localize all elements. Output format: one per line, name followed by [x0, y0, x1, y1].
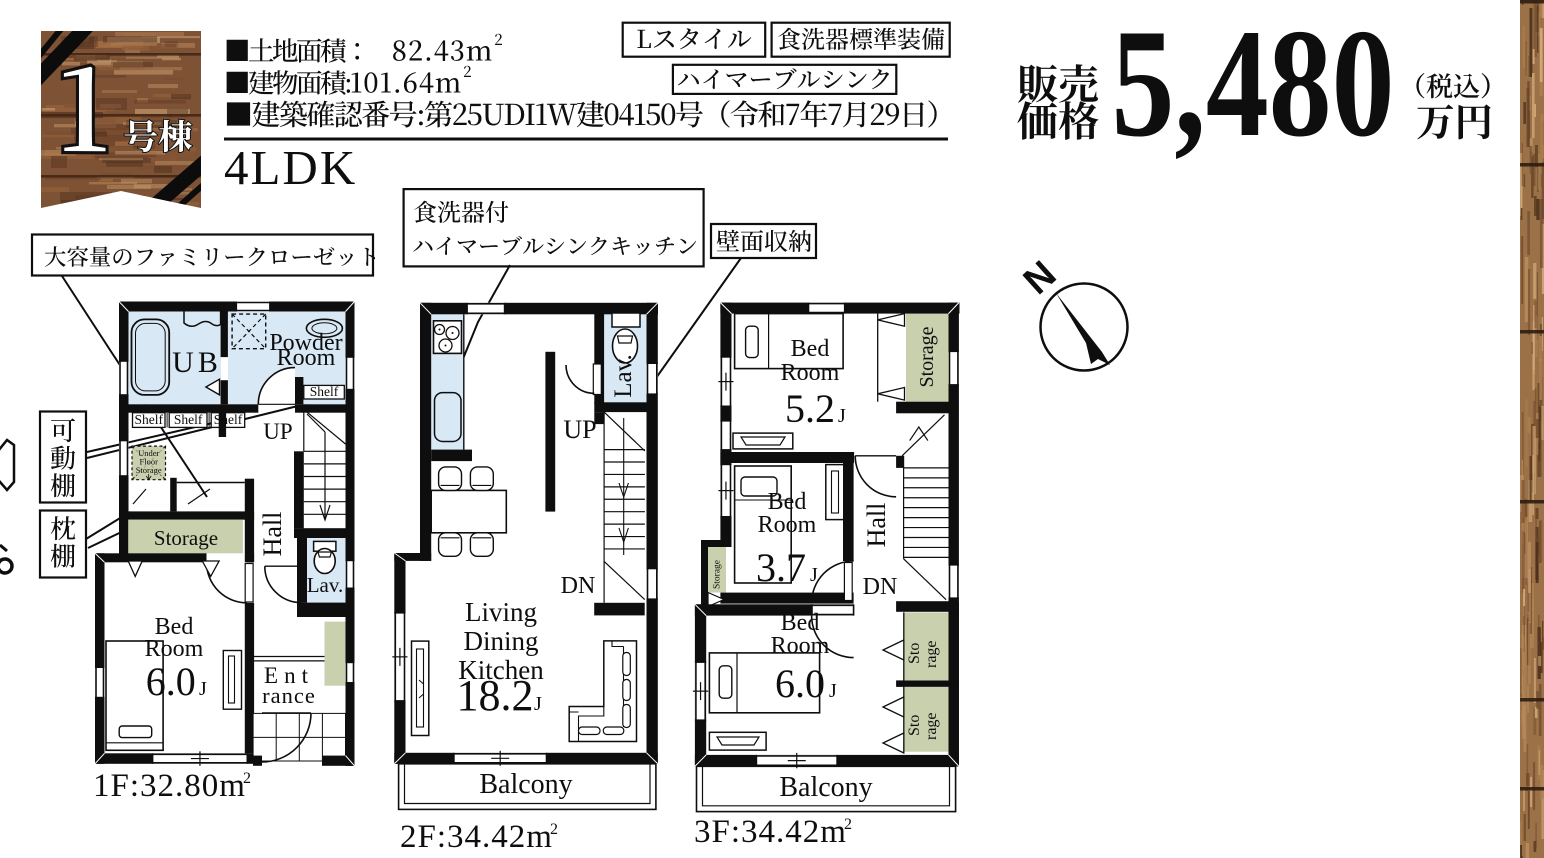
svg-text:UP: UP — [263, 419, 292, 444]
svg-text:Storage: Storage — [916, 326, 938, 387]
svg-text:UP: UP — [563, 415, 596, 444]
svg-text:rage: rage — [923, 712, 940, 740]
svg-text:rance: rance — [262, 683, 316, 708]
svg-text:Storage: Storage — [136, 465, 162, 475]
svg-text:Balcony: Balcony — [779, 772, 872, 803]
svg-text:Dining: Dining — [463, 626, 538, 656]
svg-text:UB: UB — [172, 346, 222, 379]
svg-text:3F:34.42m: 3F:34.42m — [694, 814, 847, 850]
svg-text:Storage: Storage — [154, 526, 218, 550]
svg-text:Balcony: Balcony — [479, 769, 572, 800]
svg-text:Shelf: Shelf — [135, 412, 164, 427]
svg-text:Sto: Sto — [906, 715, 923, 736]
svg-text:Room: Room — [771, 633, 830, 659]
svg-text:Room: Room — [781, 360, 840, 386]
svg-text:rage: rage — [923, 640, 940, 668]
svg-text:J: J — [829, 680, 837, 702]
svg-text:DN: DN — [561, 573, 596, 599]
svg-text:Storage: Storage — [713, 560, 723, 589]
svg-text:2: 2 — [550, 821, 558, 838]
svg-text:J: J — [199, 678, 207, 700]
svg-text:Bed: Bed — [791, 336, 830, 362]
svg-text:Hall: Hall — [862, 503, 891, 548]
svg-text:Living: Living — [465, 597, 537, 627]
svg-text:5,480: 5,480 — [1112, 0, 1395, 169]
svg-text:Shelf: Shelf — [310, 384, 339, 399]
svg-text:Lav.: Lav. — [307, 573, 344, 597]
svg-text:4LDK: 4LDK — [224, 140, 357, 195]
svg-text:J: J — [838, 405, 846, 427]
svg-text:5.2: 5.2 — [785, 386, 835, 431]
svg-text:2: 2 — [243, 770, 251, 787]
svg-text:Shelf: Shelf — [214, 412, 243, 427]
svg-text:6.0: 6.0 — [146, 659, 196, 704]
svg-text:Hall: Hall — [258, 512, 287, 557]
svg-text:DN: DN — [863, 574, 898, 600]
svg-text:2F:34.42m: 2F:34.42m — [400, 819, 553, 855]
svg-text:Room: Room — [277, 345, 336, 371]
svg-text:2: 2 — [844, 816, 852, 833]
svg-text:N: N — [1016, 253, 1065, 303]
svg-text:18.2: 18.2 — [457, 671, 534, 720]
svg-text:Sto: Sto — [906, 643, 923, 664]
svg-text:Lav.: Lav. — [610, 354, 637, 398]
svg-text:Room: Room — [758, 512, 817, 538]
svg-text:1F:32.80m: 1F:32.80m — [93, 768, 246, 804]
svg-text:6.0: 6.0 — [775, 661, 825, 706]
svg-text:Shelf: Shelf — [174, 412, 203, 427]
svg-text:3.7: 3.7 — [756, 545, 806, 590]
svg-text:J: J — [534, 693, 542, 715]
